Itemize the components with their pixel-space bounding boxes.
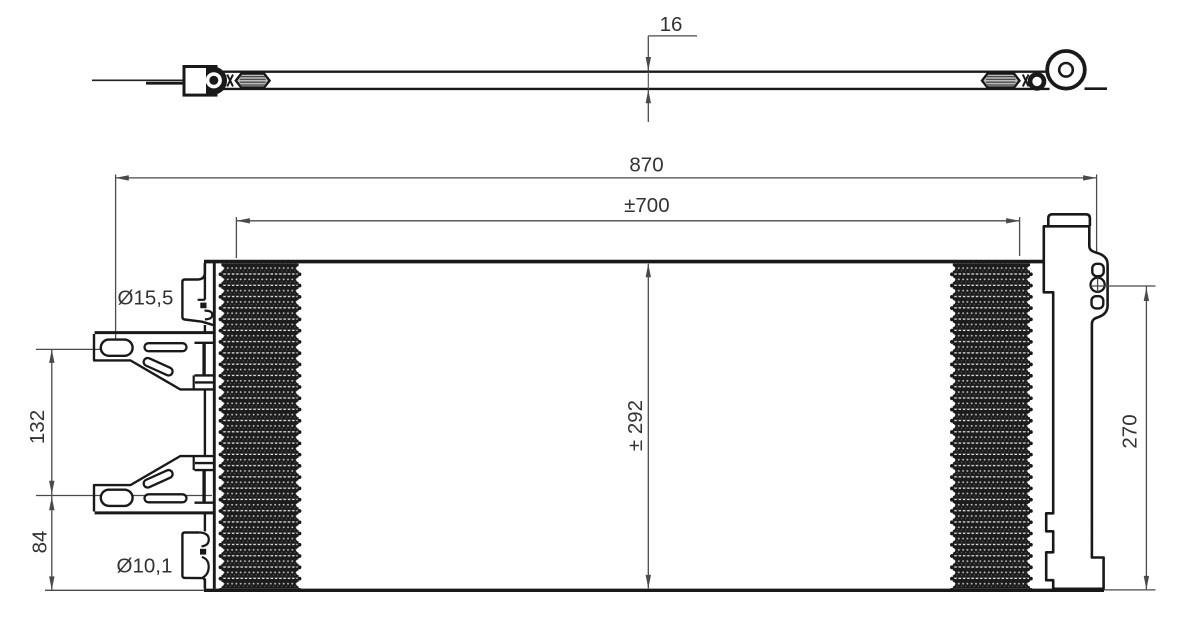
svg-text:270: 270 [1118,414,1141,448]
svg-text:± 292: ± 292 [624,400,647,451]
svg-text:±700: ±700 [624,194,669,217]
svg-text:132: 132 [26,410,49,444]
svg-text:84: 84 [28,531,51,554]
svg-text:16: 16 [660,13,683,36]
svg-text:870: 870 [629,154,663,177]
svg-text:Ø10,1: Ø10,1 [117,555,173,578]
svg-text:Ø15,5: Ø15,5 [118,287,174,310]
